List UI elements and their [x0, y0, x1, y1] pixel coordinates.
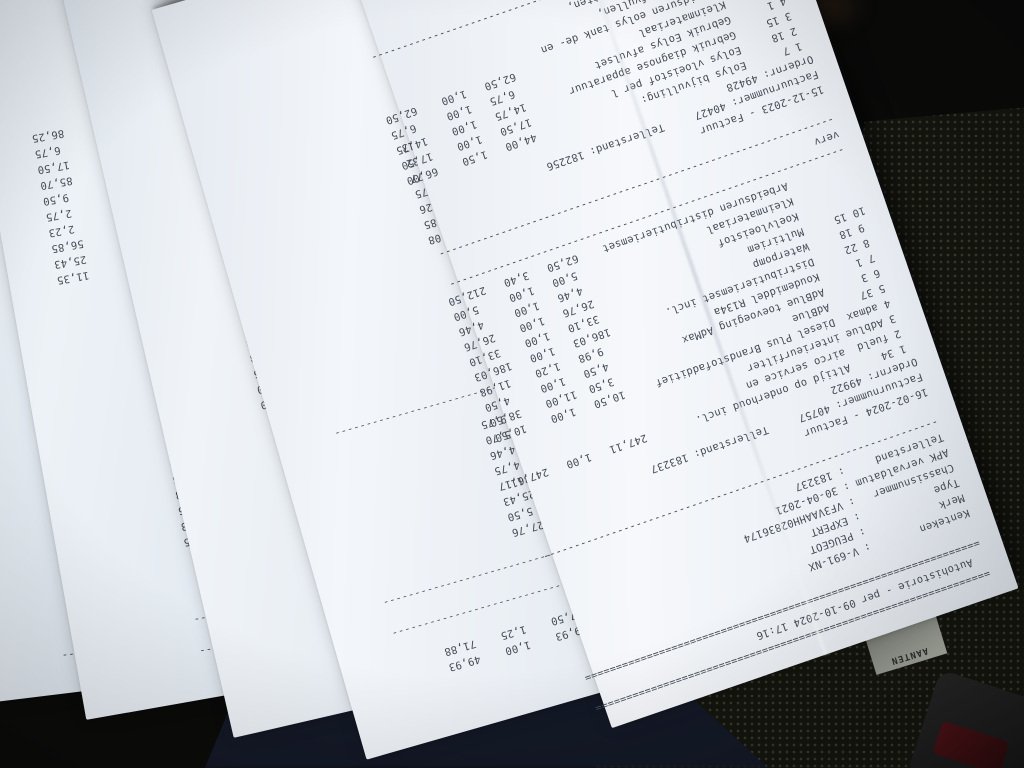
seatbelt-buckle-red-detail [932, 721, 1009, 768]
car-seat-invoice-photo: AANTEN ---------------------------------… [0, 0, 1024, 768]
edge-amount-column: 11,3525,4356,85 2,23 2,75 9,5085,7017,50… [31, 125, 91, 288]
